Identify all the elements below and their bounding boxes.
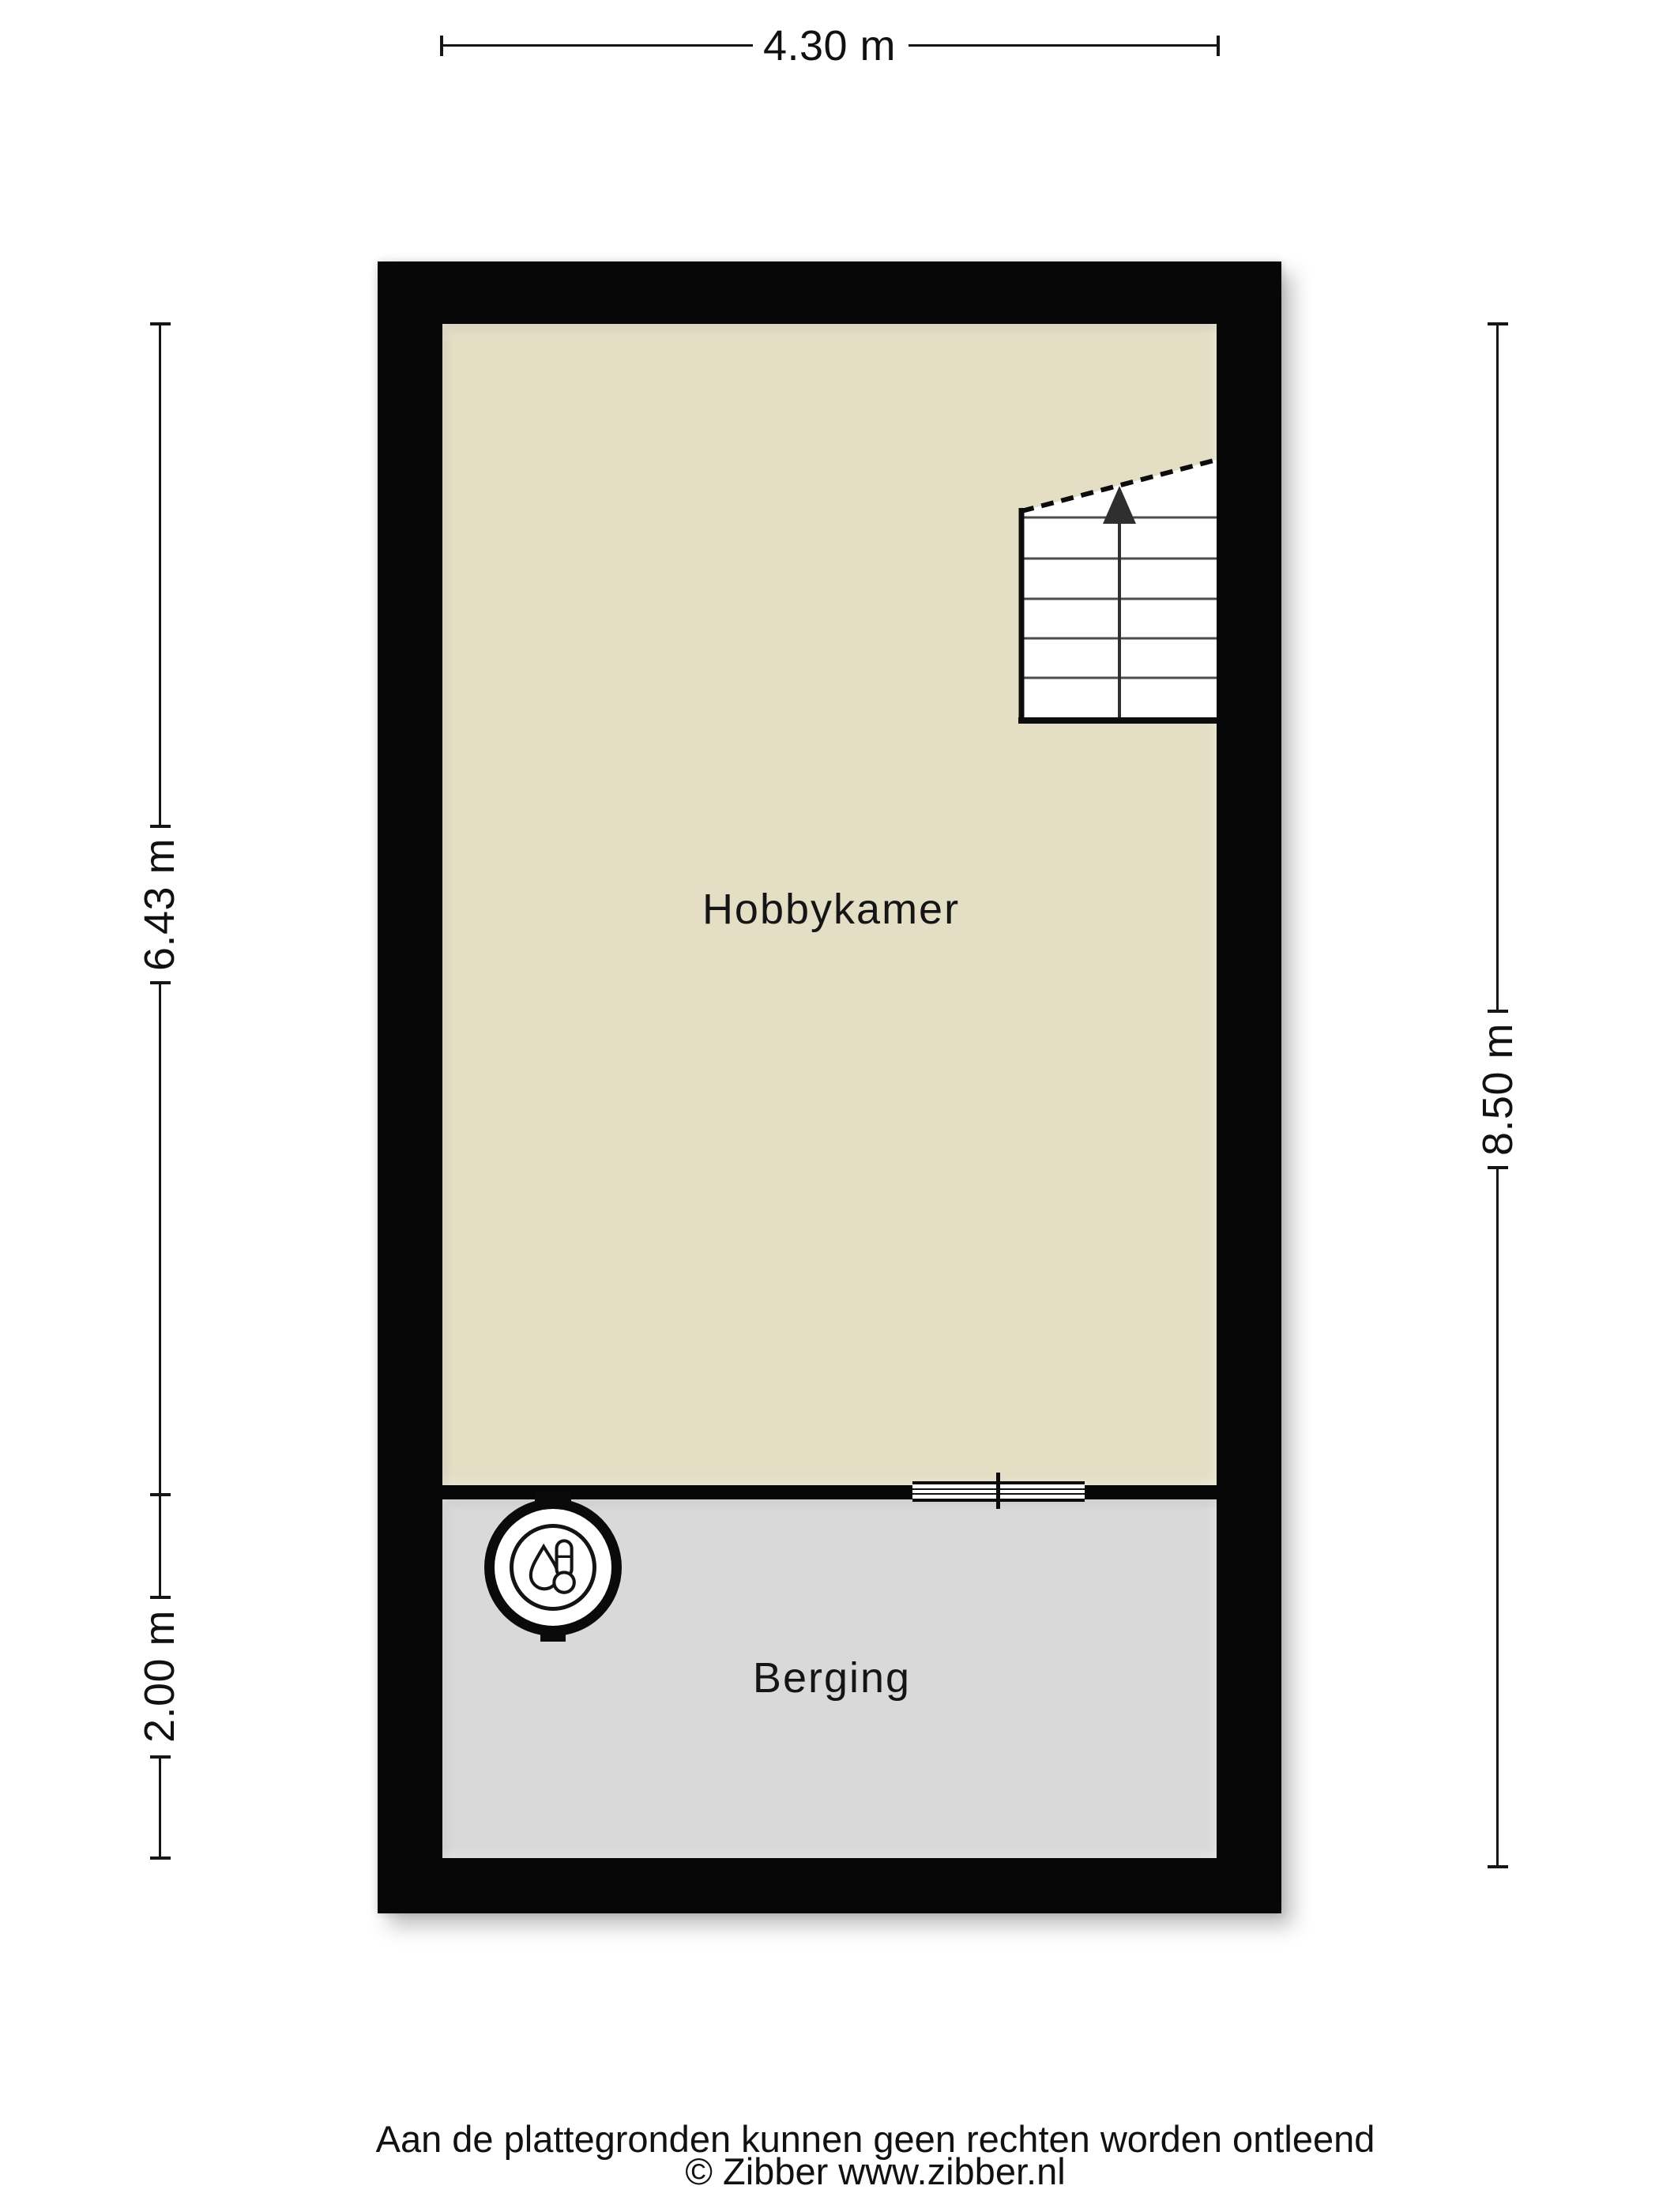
dim-tick	[150, 1755, 171, 1759]
dim-label-left-lower: 2.00 m	[135, 1610, 184, 1743]
dim-tick	[150, 981, 171, 984]
room-label-berging: Berging	[753, 1653, 911, 1702]
boiler-icon-glyph	[513, 1528, 592, 1607]
dim-line	[159, 983, 161, 1495]
dim-tick	[150, 1596, 171, 1599]
dim-label-right: 8.50 m	[1473, 1023, 1522, 1156]
dim-tick	[1488, 1865, 1508, 1868]
dim-label-left-upper: 6.43 m	[135, 838, 184, 971]
room-label-hobbykamer: Hobbykamer	[702, 885, 960, 934]
dim-line	[1496, 324, 1499, 1011]
footer-copyright: © Zibber www.zibber.nl	[685, 2150, 1065, 2193]
boiler-thermometer-icon	[484, 1499, 622, 1636]
dim-tick	[150, 825, 171, 828]
dim-line	[1496, 1168, 1499, 1867]
dim-tick	[440, 36, 443, 56]
dim-tick	[1488, 1010, 1508, 1013]
dim-line	[159, 324, 161, 826]
dim-tick	[150, 1856, 171, 1860]
dim-tick	[150, 322, 171, 325]
floor-plan-page: 4.30 m 6.43 m 2.00 m 8.50 m	[0, 0, 1659, 2212]
stairs-icon	[1011, 446, 1224, 727]
window-marker-tick	[996, 1473, 1000, 1509]
dim-line	[159, 1496, 161, 1597]
dim-line	[159, 1757, 161, 1858]
dim-tick	[1488, 322, 1508, 325]
dim-tick	[1217, 36, 1220, 56]
dim-line	[442, 44, 753, 47]
dim-label-top: 4.30 m	[763, 21, 896, 70]
dim-line	[908, 44, 1218, 47]
boiler-icon-ring	[510, 1524, 596, 1611]
dim-tick	[1488, 1166, 1508, 1169]
